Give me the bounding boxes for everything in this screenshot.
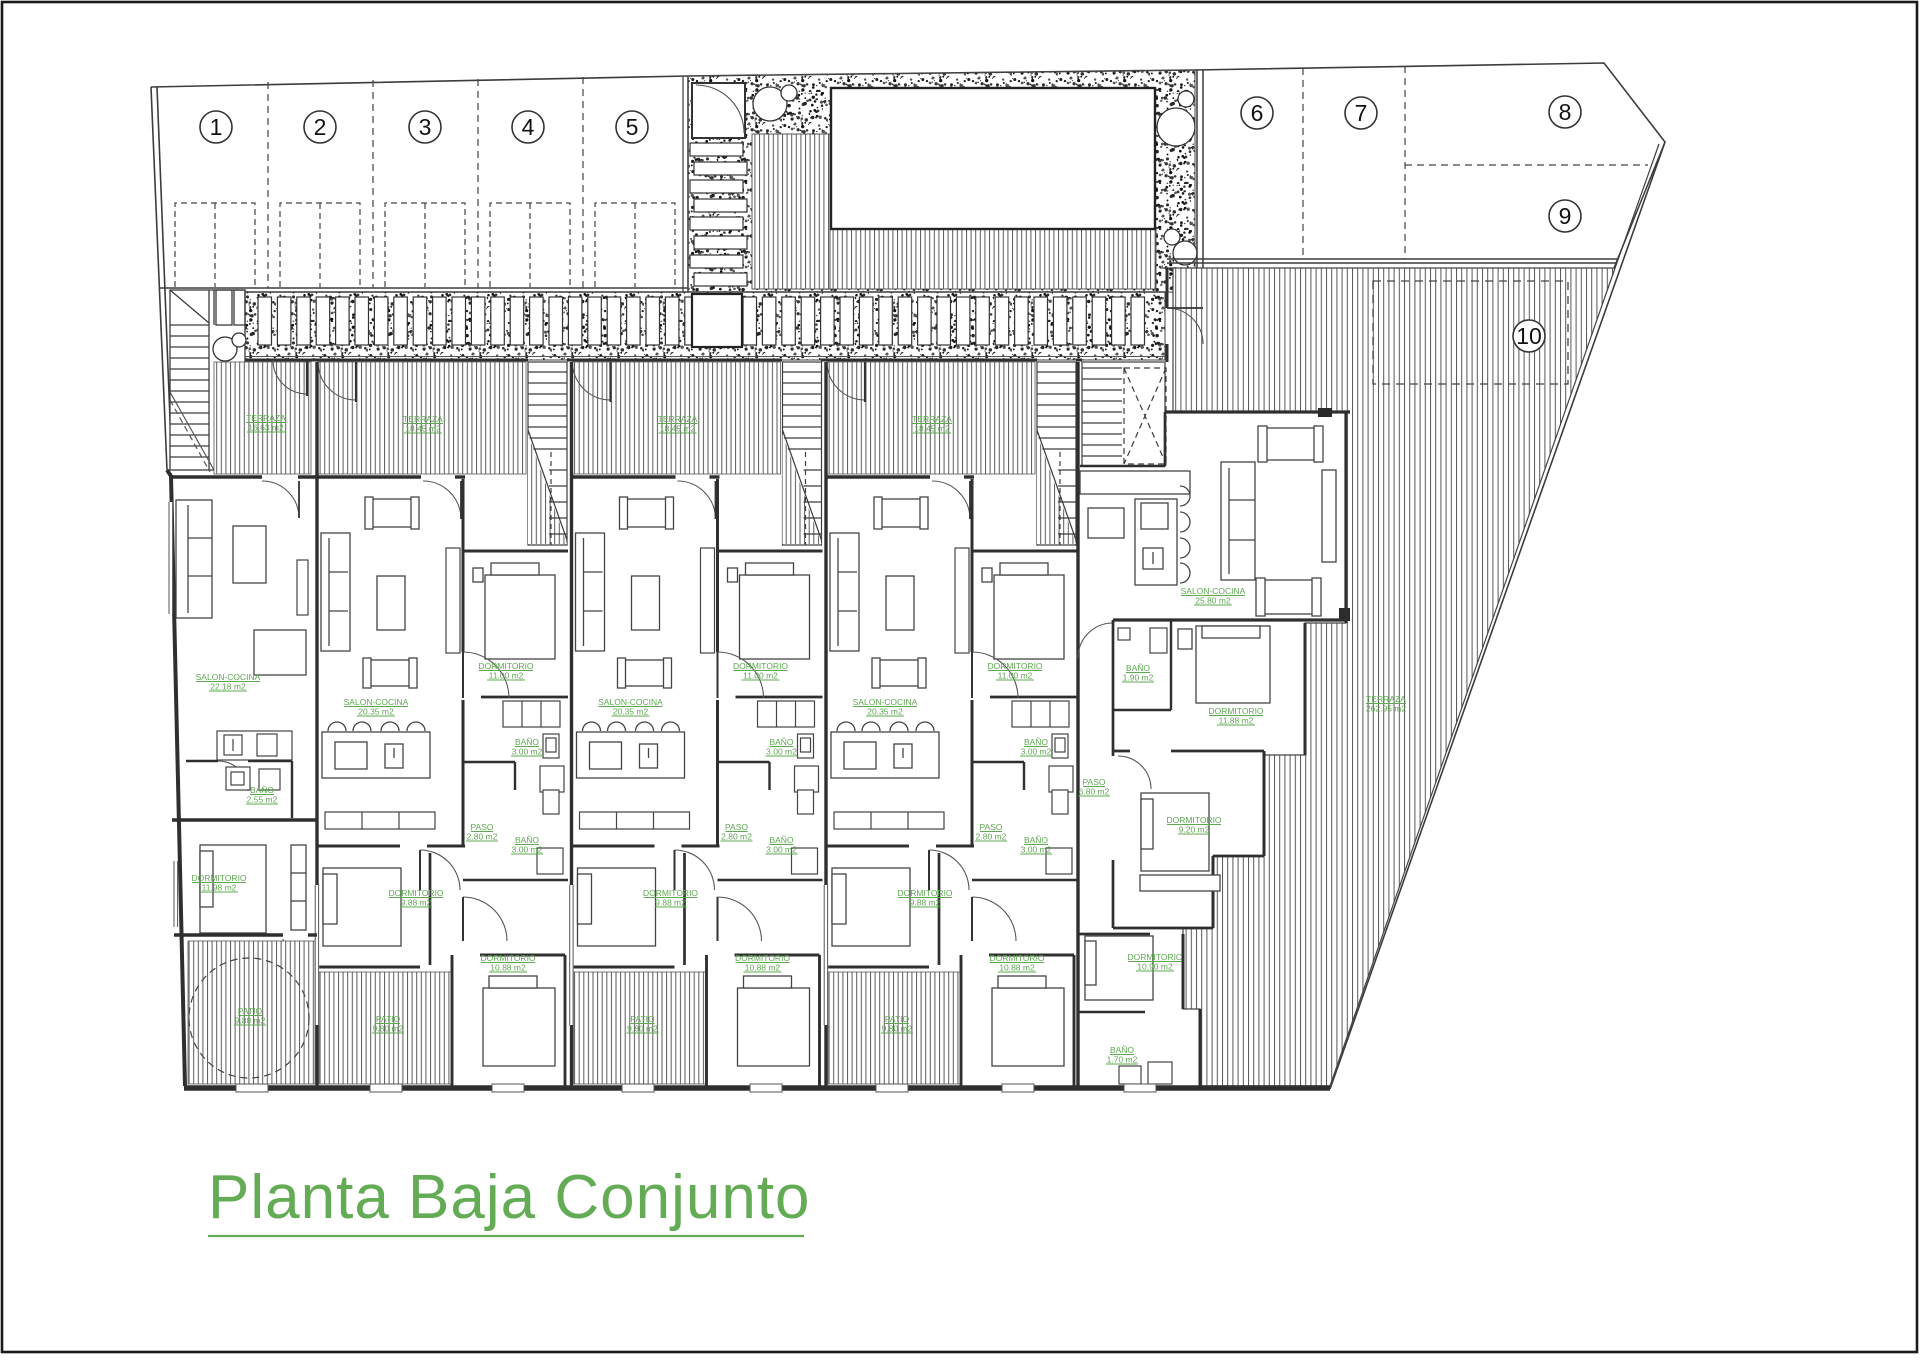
svg-text:9.88 m2: 9.88 m2 xyxy=(235,1016,266,1026)
svg-text:BAÑO: BAÑO xyxy=(1126,663,1150,673)
svg-text:262.95 m2: 262.95 m2 xyxy=(1366,704,1406,714)
svg-text:TERRAZA: TERRAZA xyxy=(1366,694,1406,704)
svg-text:10.90 m2: 10.90 m2 xyxy=(1137,962,1173,972)
svg-text:DORMITORIO: DORMITORIO xyxy=(1166,815,1221,825)
svg-text:DORMITORIO: DORMITORIO xyxy=(1127,952,1182,962)
svg-text:TERRAZA: TERRAZA xyxy=(246,413,286,423)
svg-text:9: 9 xyxy=(1559,203,1572,229)
svg-text:3: 3 xyxy=(419,114,432,140)
svg-text:2: 2 xyxy=(314,114,327,140)
svg-text:16.63 m2: 16.63 m2 xyxy=(248,423,284,433)
svg-text:6.80 m2: 6.80 m2 xyxy=(1079,787,1110,797)
svg-text:PASO: PASO xyxy=(1083,777,1106,787)
svg-text:25.80 m2: 25.80 m2 xyxy=(1195,596,1231,606)
svg-text:Planta Baja Conjunto: Planta Baja Conjunto xyxy=(208,1163,811,1232)
svg-text:6: 6 xyxy=(1251,100,1264,126)
svg-text:1.70 m2: 1.70 m2 xyxy=(1107,1055,1138,1065)
svg-text:PATIO: PATIO xyxy=(238,1006,263,1016)
svg-text:BAÑO: BAÑO xyxy=(1110,1045,1134,1055)
svg-text:10: 10 xyxy=(1516,323,1542,349)
svg-text:9.20 m2: 9.20 m2 xyxy=(1179,825,1210,835)
svg-text:4: 4 xyxy=(522,114,535,140)
svg-text:11.88 m2: 11.88 m2 xyxy=(1219,716,1254,726)
svg-text:7: 7 xyxy=(1355,100,1368,126)
svg-text:SALON-COCINA: SALON-COCINA xyxy=(1181,586,1246,596)
svg-text:2.55 m2: 2.55 m2 xyxy=(247,795,278,805)
svg-text:BAÑO: BAÑO xyxy=(250,785,274,795)
svg-text:1: 1 xyxy=(210,114,223,140)
svg-text:1.90 m2: 1.90 m2 xyxy=(1123,673,1154,683)
svg-text:DORMITORIO: DORMITORIO xyxy=(1208,706,1263,716)
svg-text:SALON-COCINA: SALON-COCINA xyxy=(196,672,261,682)
svg-text:8: 8 xyxy=(1559,99,1572,125)
svg-text:DORMITORIO: DORMITORIO xyxy=(191,873,246,883)
svg-text:5: 5 xyxy=(626,114,639,140)
svg-text:11.98 m2: 11.98 m2 xyxy=(202,883,237,893)
svg-text:22.18 m2: 22.18 m2 xyxy=(210,682,246,692)
